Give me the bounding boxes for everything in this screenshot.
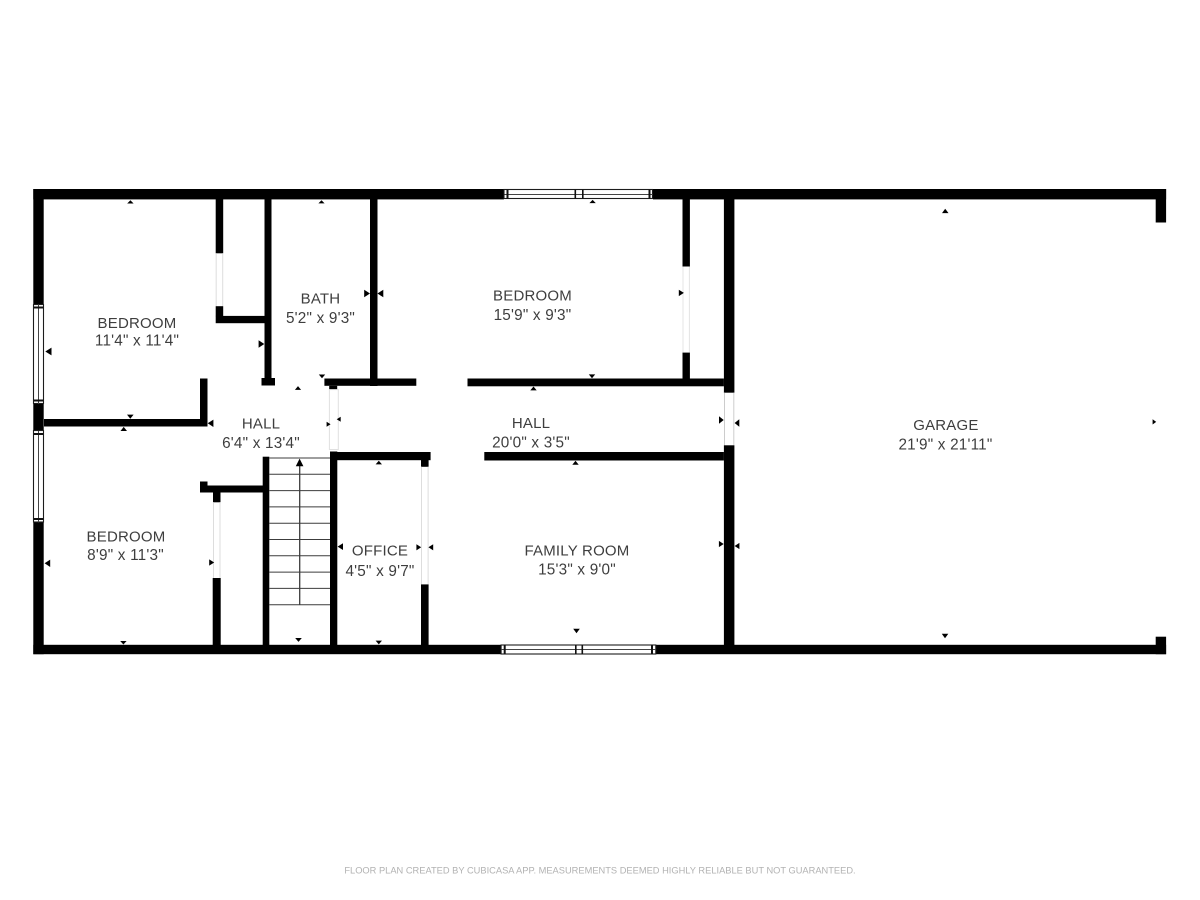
svg-text:GARAGE: GARAGE (913, 417, 978, 434)
svg-text:BEDROOM: BEDROOM (493, 288, 572, 305)
svg-text:FLOOR PLAN CREATED BY CUBICASA: FLOOR PLAN CREATED BY CUBICASA APP. MEAS… (344, 866, 855, 876)
svg-text:4'5" x 9'7": 4'5" x 9'7" (345, 563, 414, 580)
svg-text:HALL: HALL (512, 415, 550, 432)
svg-text:BATH: BATH (301, 291, 341, 308)
svg-text:BEDROOM: BEDROOM (98, 315, 177, 332)
svg-text:6'4" x 13'4": 6'4" x 13'4" (222, 435, 300, 452)
svg-text:5'2" x 9'3": 5'2" x 9'3" (286, 310, 355, 327)
svg-text:HALL: HALL (242, 416, 280, 433)
svg-text:20'0" x 3'5": 20'0" x 3'5" (492, 435, 570, 452)
svg-text:15'3" x 9'0": 15'3" x 9'0" (538, 562, 616, 579)
svg-text:8'9" x 11'3": 8'9" x 11'3" (87, 547, 164, 564)
svg-text:OFFICE: OFFICE (352, 543, 408, 560)
svg-text:BEDROOM: BEDROOM (87, 529, 166, 546)
svg-text:11'4" x 11'4": 11'4" x 11'4" (95, 333, 179, 350)
svg-text:21'9" x 21'11": 21'9" x 21'11" (898, 437, 992, 454)
svg-text:FAMILY ROOM: FAMILY ROOM (525, 543, 630, 560)
svg-text:15'9" x 9'3": 15'9" x 9'3" (494, 307, 572, 324)
